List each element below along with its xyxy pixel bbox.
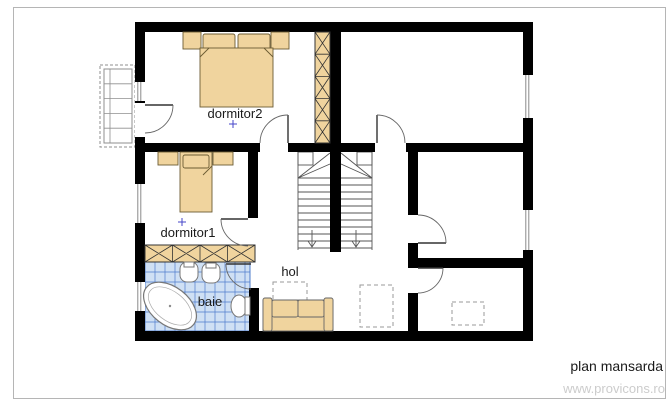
double-bed xyxy=(183,32,289,107)
floor-plan-drawing: dormitor2 dormitor1 baie hol plan mansar… xyxy=(0,0,668,400)
door-dormitor1 xyxy=(221,219,248,246)
mattress xyxy=(200,48,273,107)
exterior-wall-top xyxy=(135,22,533,32)
exterior-wall-bottom xyxy=(135,331,533,341)
interior-wall xyxy=(248,152,258,218)
watermark: www.provicons.ro xyxy=(562,381,665,396)
door-middle-right-room xyxy=(418,215,446,243)
door-dormitor2 xyxy=(260,115,288,143)
wardrobe-dormitor1 xyxy=(145,245,255,262)
toilet xyxy=(180,262,198,282)
wardrobe-dormitor2 xyxy=(315,32,330,143)
nightstand xyxy=(271,32,289,49)
bidet xyxy=(202,263,220,283)
sofa xyxy=(263,298,333,331)
balcony-door-opening xyxy=(135,103,145,137)
washbasin xyxy=(231,295,250,317)
sofa-armrest xyxy=(263,298,272,331)
interior-wall-central xyxy=(330,32,341,252)
room-label-dormitor2: dormitor2 xyxy=(208,106,263,121)
exterior-wall-right xyxy=(523,22,533,341)
dashed-outline-room xyxy=(452,302,484,325)
sofa-armrest xyxy=(324,298,333,331)
floor-plan-canvas: dormitor2 dormitor1 baie hol plan mansar… xyxy=(0,0,668,400)
room-label-baie: baie xyxy=(198,294,223,309)
nightstand xyxy=(183,32,201,49)
interior-wall xyxy=(288,143,330,152)
interior-wall xyxy=(408,258,523,268)
window-left-dormitor2 xyxy=(135,80,145,103)
interior-wall xyxy=(408,152,418,215)
sofa-cushion xyxy=(298,300,324,317)
balcony xyxy=(100,65,135,147)
interior-wall xyxy=(406,143,523,152)
dashed-outline-corridor xyxy=(360,285,393,327)
nightstand xyxy=(158,152,178,165)
cross-marker-dormitor2 xyxy=(229,120,237,128)
nightstand xyxy=(213,152,233,165)
window-left-dormitor1 xyxy=(135,182,145,225)
window-right-top-room xyxy=(523,73,533,120)
interior-wall xyxy=(341,143,375,152)
room-label-dormitor1: dormitor1 xyxy=(161,225,216,240)
interior-wall xyxy=(408,293,418,331)
interior-wall xyxy=(145,143,260,152)
sofa-cushion xyxy=(272,300,298,317)
plan-title: plan mansarda xyxy=(570,358,663,374)
door-top-right-room xyxy=(377,115,405,143)
window-right-middle-room xyxy=(523,208,533,252)
room-label-hol: hol xyxy=(281,264,298,279)
door-balcony xyxy=(145,105,173,133)
door-bottom-right-room xyxy=(418,268,443,293)
pillow xyxy=(183,155,209,168)
single-bed xyxy=(158,152,233,212)
